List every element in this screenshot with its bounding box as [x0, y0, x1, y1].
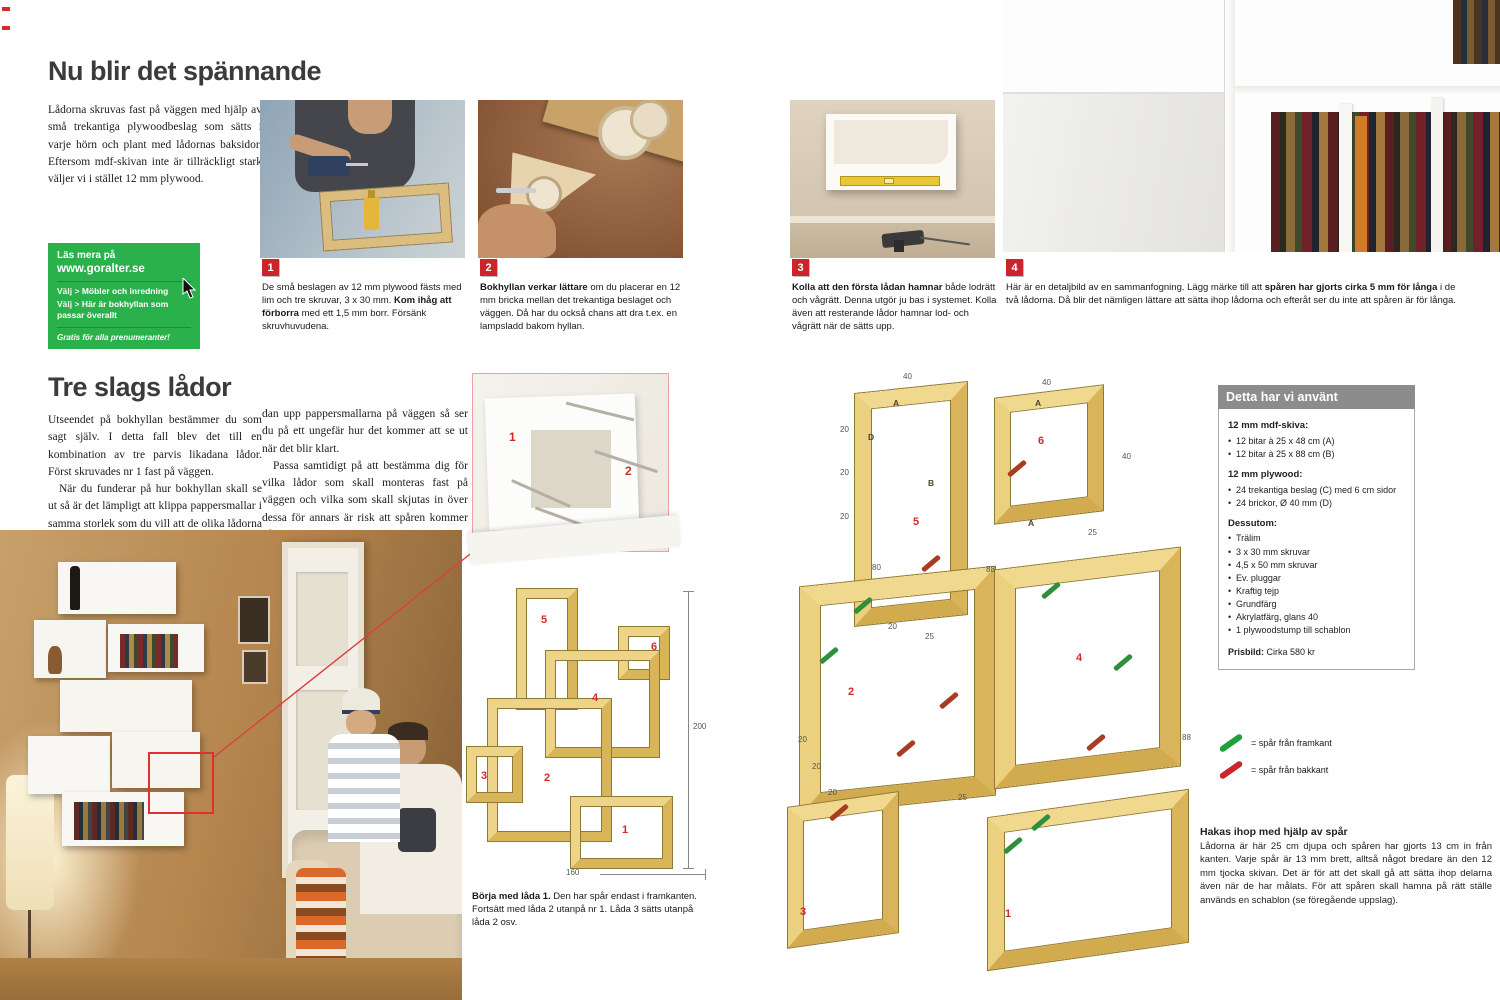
materials-item: 24 brickor, Ø 40 mm (D) [1228, 497, 1405, 510]
hand [478, 204, 556, 258]
layout-num-4: 4 [592, 692, 598, 704]
dim-label: 20 [812, 762, 821, 771]
books-row [1271, 112, 1500, 252]
wood-floor [0, 958, 462, 1000]
figurine [70, 566, 80, 610]
dim-label: 40 [1122, 452, 1131, 461]
exploded-box-2 [800, 567, 995, 815]
shelf-box [28, 736, 110, 794]
article2-col1-p1: Utseendet på bokhyllan bestämmer du som … [48, 412, 262, 481]
height-dim-tick [683, 591, 694, 592]
green-slot-icon [1219, 733, 1244, 753]
exploded-num-3: 3 [800, 906, 806, 918]
height-dim-line [688, 591, 689, 869]
legend-back-label: = spår från bakkant [1251, 765, 1328, 775]
layout-num-5: 5 [541, 614, 547, 626]
materials-group3-title: Dessutom: [1228, 517, 1405, 531]
glue-bottle [364, 196, 379, 230]
dim-label: 80 [872, 563, 881, 572]
width-dim-tick [705, 869, 706, 880]
part-letter-D: D [868, 432, 874, 442]
promo-choice2-prefix: Välj > [57, 299, 79, 309]
inset-detail-photo: 1 2 [472, 373, 669, 552]
exploded-num-2: 2 [848, 686, 854, 698]
width-dim-label: 160 [566, 868, 579, 877]
promo-divider2 [57, 327, 191, 328]
legend-front-slot: = spår från framkant [1218, 738, 1332, 748]
legend-back-slot: = spår från bakkant [1218, 765, 1328, 775]
exploded-num-1: 1 [1005, 908, 1011, 920]
step2-caption-bold: Bokhyllan verkar lättare [480, 282, 588, 293]
book-orange-spine [1355, 116, 1367, 252]
materials-item: 3 x 30 mm skruvar [1228, 546, 1405, 559]
dim-label: 40 [1042, 378, 1051, 387]
materials-header: Detta har vi använt [1218, 385, 1415, 409]
part-letter-A3: A [1028, 518, 1034, 528]
materials-item: Trälim [1228, 532, 1405, 545]
promo-line1: Läs mera på [57, 250, 191, 262]
layout-num-2: 2 [544, 772, 550, 784]
article1-title: Nu blir det spännande [48, 56, 321, 87]
glue-bottle-cap [368, 190, 375, 198]
materials-group2-list: 24 trekantiga beslag (C) med 6 cm sidor … [1228, 484, 1405, 510]
exploded-box-1 [988, 790, 1188, 970]
height-dim-tick [683, 868, 694, 869]
dim-label: 20 [828, 788, 837, 797]
wood-box-frame [320, 184, 452, 251]
materials-price-label: Prisbild: [1228, 647, 1264, 657]
print-mark [2, 26, 10, 30]
child-shirt [328, 734, 400, 842]
floor-lamp [6, 775, 54, 910]
shirt-print [398, 808, 436, 852]
dim-label: 88 [986, 565, 995, 574]
dim-label: 20 [840, 512, 849, 521]
article2-title: Tre slags lådor [48, 372, 231, 403]
child-head [346, 710, 376, 736]
materials-group1-title: 12 mm mdf-skiva: [1228, 419, 1405, 433]
shelf-box [60, 680, 192, 732]
layout-box-3 [467, 747, 522, 802]
cube-front-edge [1225, 0, 1235, 252]
article1-intro: Lådorna skruvas fast på väggen med hjälp… [48, 102, 262, 188]
step3-caption: Kolla att den första lådan hamnar både l… [792, 281, 998, 333]
article1-intro-text: Lådorna skruvas fast på väggen med hjälp… [48, 102, 262, 188]
height-dim-label: 200 [693, 722, 706, 731]
legend-front-label: = spår från framkant [1251, 738, 1332, 748]
materials-body: 12 mm mdf-skiva: 12 bitar à 25 x 48 cm (… [1218, 409, 1415, 670]
materials-group1-list: 12 bitar à 25 x 48 cm (A) 12 bitar à 25 … [1228, 435, 1405, 461]
books-on-shelf [120, 634, 178, 668]
part-letter-B: B [928, 478, 934, 488]
layout-num-6: 6 [651, 641, 657, 653]
exploded-box-4 [995, 548, 1180, 789]
cube-seam-h [1003, 92, 1225, 94]
cursor-icon [181, 278, 199, 300]
skirting [790, 216, 995, 223]
step4-badge: 4 [1006, 259, 1023, 276]
materials-item: 12 bitar à 25 x 48 cm (A) [1228, 435, 1405, 448]
step1-caption: De små beslagen av 12 mm plywood fästs m… [262, 281, 468, 333]
step3-photo [790, 100, 995, 258]
promo-choice2: Välj > Här är bokhyllan som passar övera… [57, 299, 191, 321]
shelf-box [34, 620, 106, 678]
materials-item: Kraftig tejp [1228, 585, 1405, 598]
part-letter-A2: A [1035, 398, 1041, 408]
vase [48, 646, 62, 674]
materials-item: Akrylatfärg, glans 40 [1228, 611, 1405, 624]
step4-caption: Här är en detaljbild av en sammanfogning… [1006, 281, 1458, 307]
assembly-body: Lådorna är här 25 cm djupa och spåren ha… [1200, 840, 1492, 907]
step1-badge: 1 [262, 259, 279, 276]
dim-label: 25 [925, 632, 934, 641]
materials-item: 24 trekantiga beslag (C) med 6 cm sidor [1228, 484, 1405, 497]
drill-handle [894, 240, 904, 252]
materials-box: Detta har vi använt 12 mm mdf-skiva: 12 … [1218, 385, 1415, 670]
wall-box-interior [834, 120, 948, 164]
step1-photo [260, 100, 465, 258]
drill-bit [346, 163, 368, 166]
promo-url: www.goralter.se [57, 262, 191, 276]
promo-choice1-prefix: Välj > [57, 286, 79, 296]
exploded-box-6 [995, 385, 1103, 523]
promo-choice1: Välj > Möbler och inredning [57, 286, 191, 297]
inset-number-1: 1 [509, 430, 516, 444]
books-top-corner [1453, 0, 1500, 64]
magazine-spread: Nu blir det spännande Lådorna skruvas fa… [0, 0, 1500, 1000]
materials-item: 4,5 x 50 mm skruvar [1228, 559, 1405, 572]
promo-footer: Gratis för alla prenumeranter! [57, 333, 191, 342]
exploded-num-6: 6 [1038, 435, 1044, 447]
dim-label: 25 [958, 793, 967, 802]
article2-col2-p1: dan upp pappersmallarna på väggen så ser… [262, 406, 468, 458]
promo-divider [57, 281, 191, 282]
inset-number-2: 2 [625, 464, 632, 478]
living-room-photo [0, 530, 462, 1000]
part-letter-A: A [893, 398, 899, 408]
step4-photo [1003, 0, 1500, 252]
materials-item: Grundfärg [1228, 598, 1405, 611]
assembly-title: Hakas ihop med hjälp av spår [1200, 826, 1492, 838]
shelf-divider-1 [1339, 104, 1352, 252]
washer-stack-2 [630, 100, 670, 140]
step2-badge: 2 [480, 259, 497, 276]
dim-label: 20 [840, 468, 849, 477]
dim-label: 40 [903, 372, 912, 381]
step2-photo [478, 100, 683, 258]
dim-label: 20 [888, 622, 897, 631]
materials-price: Prisbild: Cirka 580 kr [1228, 646, 1405, 659]
materials-item: 12 bitar à 25 x 88 cm (B) [1228, 448, 1405, 461]
red-slot-icon [1219, 760, 1244, 780]
dim-label: 20 [840, 425, 849, 434]
materials-price-value: Cirka 580 kr [1267, 647, 1316, 657]
assembly-note: Hakas ihop med hjälp av spår Lådorna är … [1200, 826, 1492, 907]
dim-label: 20 [798, 735, 807, 744]
cube-left-face [1003, 92, 1225, 252]
cube-top-shadow [1225, 86, 1500, 96]
step4-caption-bold: spåren har gjorts cirka 5 mm för långa [1265, 282, 1438, 293]
start-caption-bold: Börja med låda 1. [472, 891, 551, 902]
materials-item: 1 plywoodstump till schablon [1228, 624, 1405, 637]
level-vial [884, 178, 894, 184]
article2-col2: dan upp pappersmallarna på väggen så ser… [262, 406, 468, 544]
man-head [348, 100, 392, 134]
door-panel [296, 572, 348, 666]
drill [308, 156, 350, 176]
layout-num-1: 1 [622, 824, 628, 836]
exploded-num-5: 5 [913, 516, 919, 528]
shelf-divider-2 [1431, 98, 1443, 252]
step3-caption-bold: Kolla att den första lådan hamnar [792, 282, 942, 293]
width-dim-line [600, 874, 706, 875]
exploded-num-4: 4 [1076, 652, 1082, 664]
step4-caption-pre: Här är en detaljbild av en sammanfogning… [1006, 282, 1265, 293]
step3-badge: 3 [792, 259, 809, 276]
step2-caption: Bokhyllan verkar lättare om du placerar … [480, 281, 686, 333]
materials-group2-title: 12 mm plywood: [1228, 468, 1405, 482]
dim-label: 88 [1182, 733, 1191, 742]
print-mark [2, 7, 10, 11]
promo-box: Läs mera på www.goralter.se Välj > Möble… [48, 243, 200, 349]
start-caption: Börja med låda 1. Den har spår endast i … [472, 890, 707, 929]
materials-item: Ev. pluggar [1228, 572, 1405, 585]
detail-highlight-rect [148, 752, 214, 814]
layout-num-3: 3 [481, 770, 487, 782]
screw-shaft [496, 188, 536, 193]
materials-group3-list: Trälim 3 x 30 mm skruvar 4,5 x 50 mm skr… [1228, 532, 1405, 636]
wall-frame [242, 650, 268, 684]
exploded-box-3 [788, 792, 898, 947]
promo-choice1-label: Möbler och inredning [82, 286, 168, 296]
dim-label: 25 [1088, 528, 1097, 537]
books-on-shelf [74, 802, 144, 840]
wall-frame [238, 596, 270, 644]
